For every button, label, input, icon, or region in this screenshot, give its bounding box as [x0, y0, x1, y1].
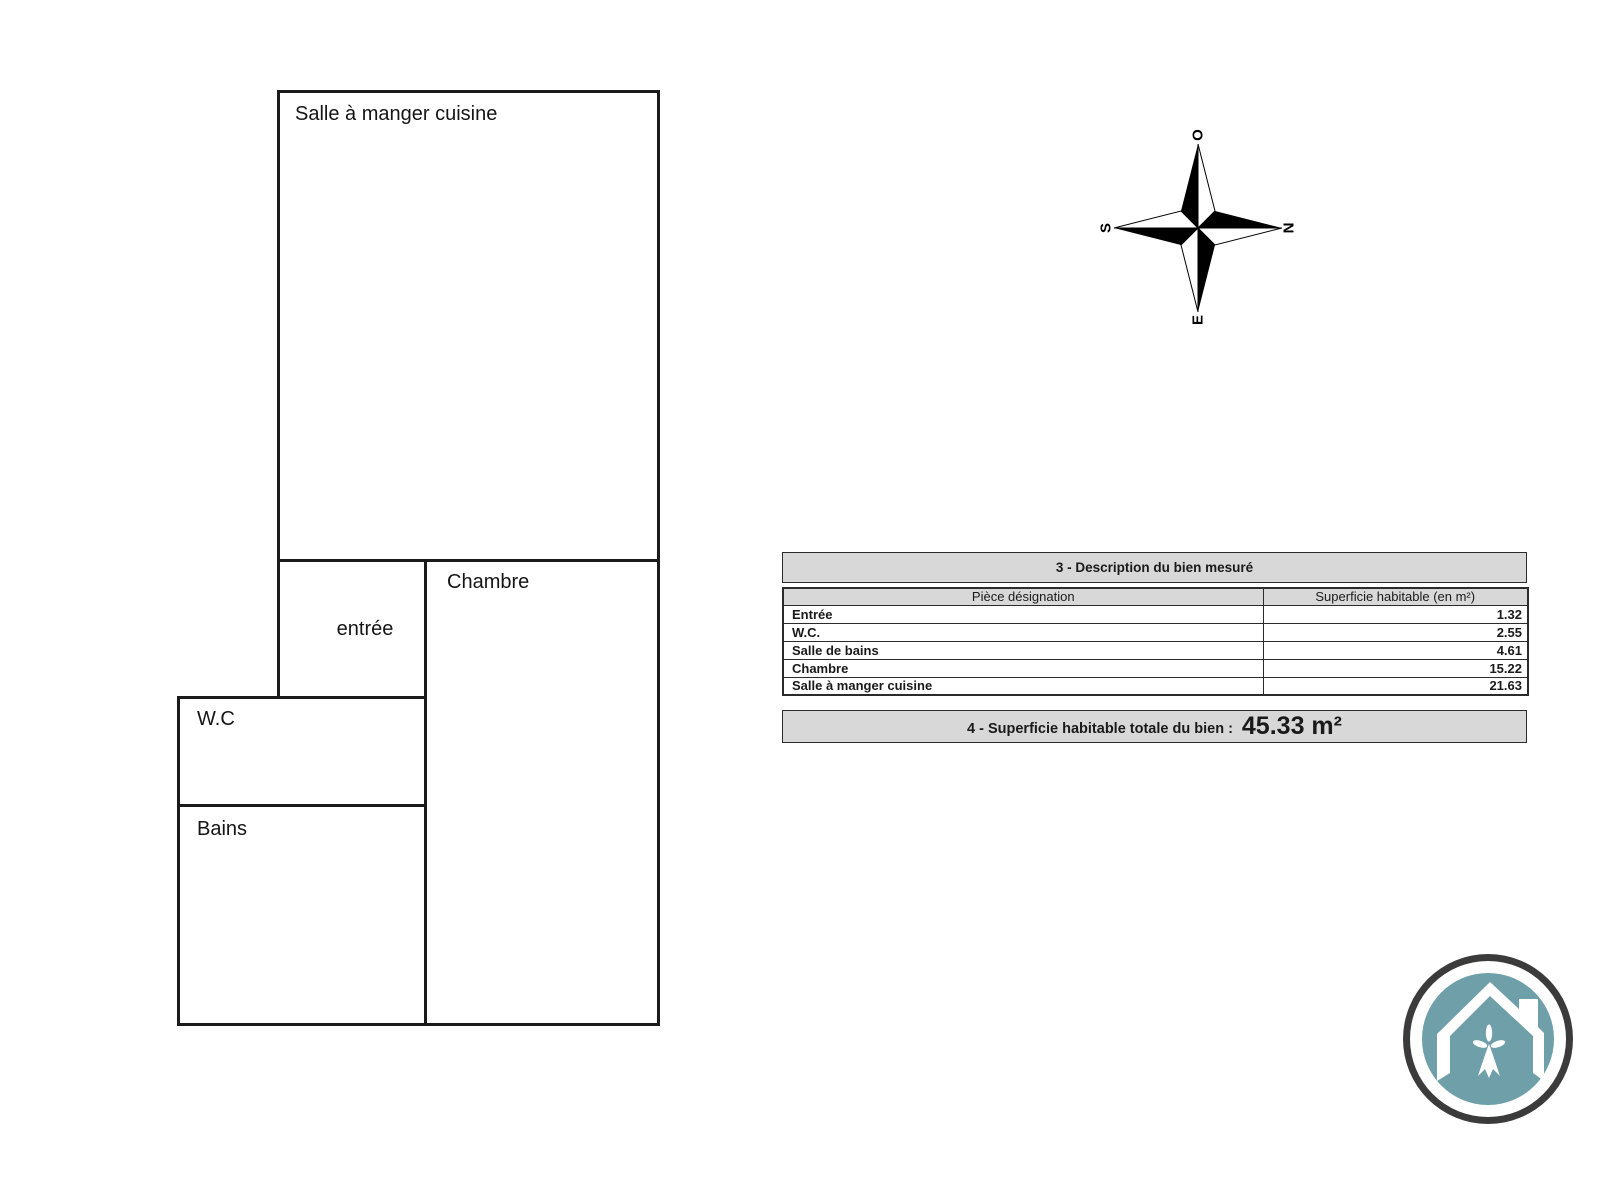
- room-bains: Bains: [177, 804, 427, 1026]
- room-label: Chambre: [427, 562, 657, 594]
- table-row: Salle de bains 4.61: [783, 641, 1528, 659]
- room-name-cell: Salle de bains: [783, 641, 1263, 659]
- compass-letter-south: S: [1098, 223, 1115, 233]
- room-label: Salle à manger cuisine: [280, 93, 657, 126]
- room-label: entrée: [311, 618, 394, 641]
- total-area-value: 45.33 m²: [1242, 712, 1342, 741]
- table-title: 3 - Description du bien mesuré: [782, 552, 1527, 583]
- table-header-row: Pièce désignation Superficie habitable (…: [783, 588, 1528, 605]
- total-area-bar: 4 - Superficie habitable totale du bien …: [782, 710, 1527, 743]
- room-area-cell: 4.61: [1263, 641, 1528, 659]
- table-row: W.C. 2.55: [783, 623, 1528, 641]
- room-salle-a-manger-cuisine: Salle à manger cuisine: [277, 90, 660, 562]
- compass-letter-north: N: [1281, 223, 1298, 234]
- agency-logo: [1402, 953, 1574, 1125]
- column-header-superficie: Superficie habitable (en m²): [1263, 588, 1528, 605]
- room-label: Bains: [180, 807, 424, 841]
- compass-rose-icon: O N E S: [1098, 128, 1298, 328]
- column-header-piece: Pièce désignation: [783, 588, 1263, 605]
- room-area-cell: 1.32: [1263, 605, 1528, 623]
- room-name-cell: Salle à manger cuisine: [783, 677, 1263, 695]
- page: { "floor_plan": { "rooms": [ {"label": "…: [0, 0, 1600, 1200]
- room-chambre: Chambre: [424, 559, 660, 1026]
- table-row: Salle à manger cuisine 21.63: [783, 677, 1528, 695]
- room-label: W.C: [180, 699, 424, 731]
- room-wc: W.C: [177, 696, 427, 807]
- measure-section: 3 - Description du bien mesuré Pièce dés…: [782, 552, 1527, 696]
- table-row: Chambre 15.22: [783, 659, 1528, 677]
- room-name-cell: W.C.: [783, 623, 1263, 641]
- room-area-cell: 2.55: [1263, 623, 1528, 641]
- room-area-cell: 21.63: [1263, 677, 1528, 695]
- compass-letter-west: O: [1190, 129, 1207, 141]
- room-area-cell: 15.22: [1263, 659, 1528, 677]
- table-row: Entrée 1.32: [783, 605, 1528, 623]
- rooms-area-table: Pièce désignation Superficie habitable (…: [782, 587, 1529, 696]
- room-name-cell: Entrée: [783, 605, 1263, 623]
- room-entree: entrée: [277, 559, 427, 699]
- compass-letter-east: E: [1190, 315, 1207, 325]
- total-area-label: 4 - Superficie habitable totale du bien …: [967, 714, 1233, 745]
- room-name-cell: Chambre: [783, 659, 1263, 677]
